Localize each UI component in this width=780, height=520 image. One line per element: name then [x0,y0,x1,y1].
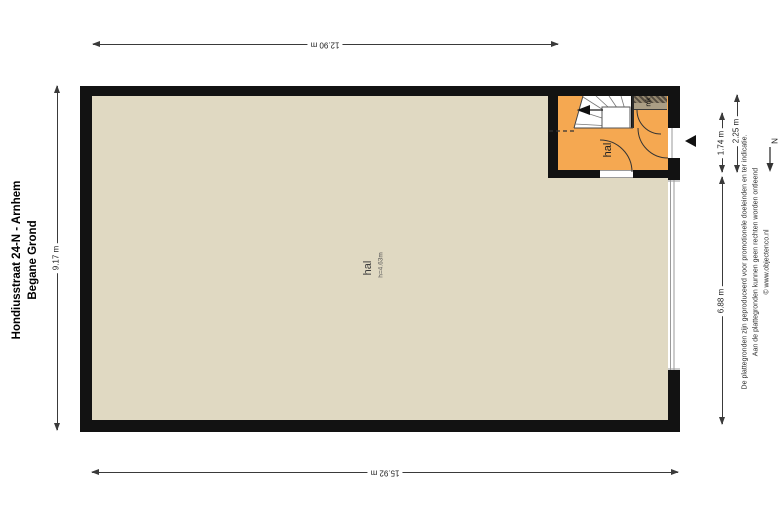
disclaimer-line-2: Aan de plattegronden kunnen geen rechten… [752,135,763,390]
plan-title: Hondiusstraat 24-N - Arnhem Begane Grond [9,181,41,340]
wall-left [80,86,92,432]
hall-wall-left [548,96,558,178]
wall-right-upper [668,86,680,128]
window-right [668,180,680,370]
wall-right-mid [668,158,680,180]
stair-mk-divider-wall [631,96,634,128]
disclaimer-line-1: De plattegronden zijn geproduceerd voor … [741,135,752,390]
dim-label-right-inner-lower: 6.88 m [718,286,727,316]
entrance-hall-label: hal [602,143,614,158]
main-hall-height-label: h=4.63m [378,252,385,277]
dim-label-right-inner-upper: 1.74 m [718,128,727,158]
entrance-arrow [685,135,696,147]
wall-bottom [80,420,680,432]
plan-title-floor: Begane Grond [25,181,41,340]
main-hall-label: hal [362,261,374,276]
wall-right-lower [668,370,680,432]
floor-plan: Hondiusstraat 24-N - Arnhem Begane Grond… [0,0,780,520]
disclaimer-line-3: © www.objectenco.nl [762,135,773,390]
disclaimer: De plattegronden zijn geproduceerd voor … [741,135,774,390]
plan-title-address: Hondiusstraat 24-N - Arnhem [9,181,25,340]
dim-label-top: 12.90 m [308,40,343,49]
hall-door-opening [600,170,633,178]
front-door-opening [668,128,680,158]
wall-top [80,86,680,96]
hall-wall-bottom-right [633,170,668,178]
meter-closet-label: mk [646,97,653,106]
dim-label-bottom: 15.92 m [368,468,403,477]
hall-wall-bottom-left [548,170,600,178]
dim-label-left: 9.17 m [53,243,62,273]
staircase [574,96,632,128]
